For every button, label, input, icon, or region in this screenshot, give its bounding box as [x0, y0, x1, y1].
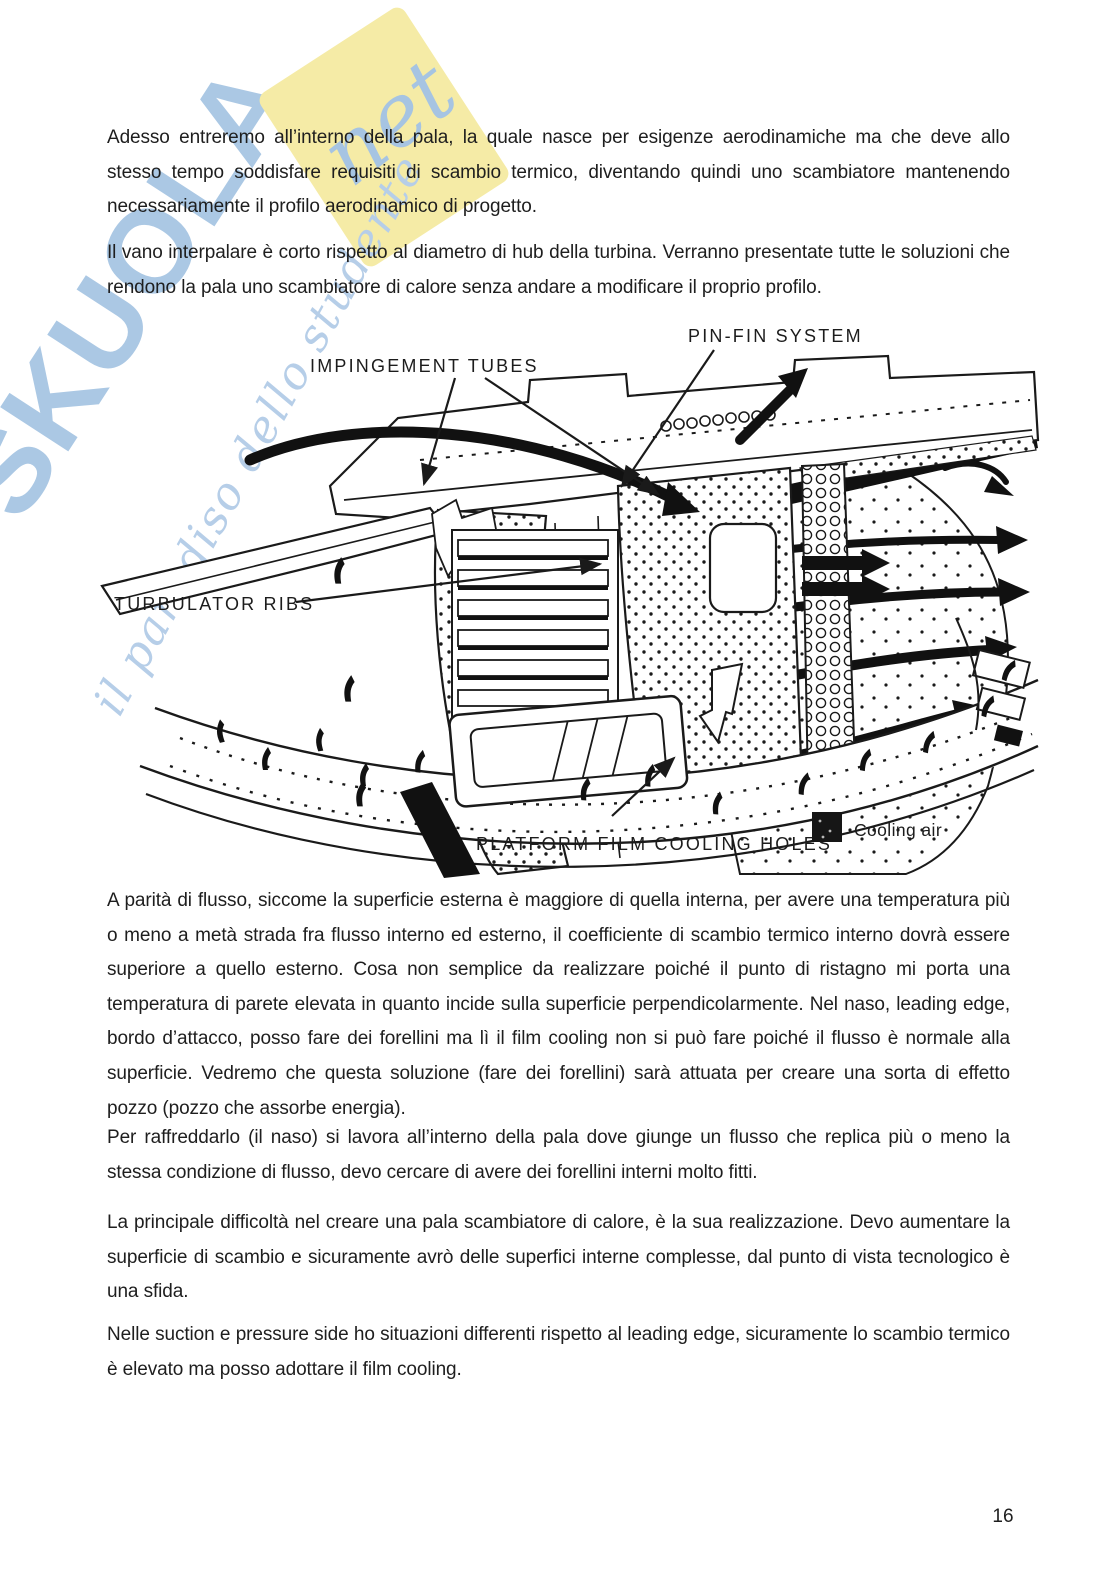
body-paragraph-6: Nelle suction e pressure side ho situazi… — [107, 1318, 1010, 1387]
cooling-air-legend-swatch — [812, 812, 842, 842]
turbulator-ribs-ladder — [452, 530, 618, 730]
figure-label-pin-fin-system: PIN-FIN SYSTEM — [688, 326, 863, 346]
turbine-blade-cooling-figure: IMPINGEMENT TUBES PIN-FIN SYSTEM TURBULA… — [100, 318, 1040, 880]
body-paragraph-4: Per raffreddarlo (il naso) si lavora all… — [107, 1121, 1010, 1190]
body-paragraph-2: Il vano interpalare è corto rispetto al … — [107, 236, 1010, 305]
figure-label-turbulator-ribs: TURBULATOR RIBS — [114, 594, 314, 614]
body-paragraph-3: A parità di flusso, siccome la superfici… — [107, 884, 1010, 1126]
figure-label-cooling-air: Cooling air — [854, 820, 942, 840]
page-number: 16 — [978, 1506, 1028, 1528]
body-paragraph-5: La principale difficoltà nel creare una … — [107, 1206, 1010, 1310]
figure-label-impingement-tubes: IMPINGEMENT TUBES — [310, 356, 539, 376]
figure-label-platform-film-cooling-holes: PLATFORM FILM COOLING HOLES — [476, 834, 832, 854]
platform-opening — [449, 695, 688, 807]
body-paragraph-1: Adesso entreremo all’interno della pala,… — [107, 121, 1010, 225]
